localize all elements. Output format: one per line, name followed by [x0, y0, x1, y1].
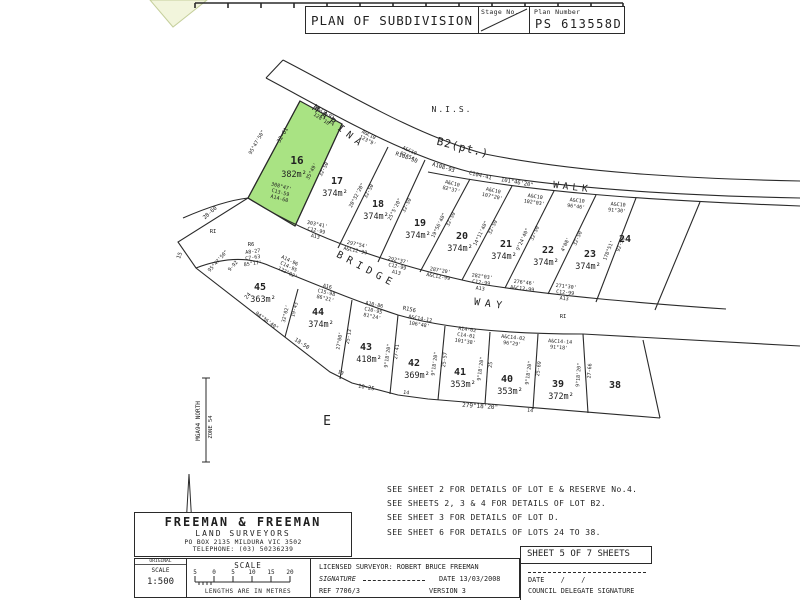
sheet-notes: SEE SHEET 2 FOR DETAILS OF LOT E & RESER…	[387, 483, 637, 540]
firm-phone: TELEPHONE: (03) 50236239	[135, 546, 351, 553]
plan-label: 374m²	[308, 320, 334, 330]
scale-value-cell: ORIGINAL SCALE 1:500	[135, 559, 187, 597]
plan-label: 14	[403, 390, 410, 397]
page-title: PLAN OF SUBDIVISION	[311, 13, 473, 28]
plan-label: 42	[408, 358, 420, 369]
plan-label: 19	[414, 218, 426, 229]
plan-label: 19-43	[290, 302, 299, 318]
plan-label: 27°00'	[335, 331, 344, 350]
scalebar-tick: 20	[286, 569, 294, 576]
plan-label: 22	[542, 245, 554, 256]
plan-label: 96°29'	[503, 340, 522, 348]
scalebar-tick: 5	[193, 569, 197, 576]
stage-no-cell: Stage No.	[479, 7, 530, 33]
firm-address: PO BOX 2135 MILDURA VIC 3502	[135, 539, 351, 546]
plan-label: 10-25	[357, 384, 374, 393]
plan-label: R6	[248, 242, 255, 248]
plan-label: 9°18'20"	[524, 361, 533, 386]
plan-label: A13	[391, 269, 401, 277]
plan-label: 9°18'20"	[476, 357, 485, 382]
note-line: SEE SHEETS 2, 3 & 4 FOR DETAILS OF LOT B…	[387, 497, 637, 511]
plan-label: 20	[456, 231, 468, 242]
firm-name: FREEMAN & FREEMAN	[135, 515, 351, 529]
plan-label: 32-50	[445, 211, 457, 227]
plan-label: 9-92	[227, 260, 240, 273]
scalebar-tick: 0	[212, 569, 216, 576]
plan-label: 374m²	[533, 258, 559, 268]
plan-label: 374m²	[363, 212, 389, 222]
title-block: PLAN OF SUBDIVISION Stage No. Plan Numbe…	[305, 6, 625, 34]
plan-label: 374m²	[322, 189, 348, 199]
plan-label: 372m²	[548, 392, 574, 402]
plan-label: 43	[360, 342, 372, 353]
council-date: DATE / /	[528, 576, 585, 584]
licensed-surveyor-line: LICENSED SURVEYOR: ROBERT BRUCE FREEMAN	[319, 563, 479, 571]
plan-label: RI	[210, 229, 217, 235]
council-signature-label: COUNCIL DELEGATE SIGNATURE	[528, 587, 634, 595]
plan-label: 32-50	[487, 219, 499, 235]
plan-label: N.I.S.	[432, 105, 473, 114]
plan-label: B2(pt.)	[435, 135, 490, 161]
plan-label: ZONE 54	[208, 415, 214, 439]
plan-label: 363m²	[250, 295, 276, 305]
note-line: SEE SHEET 3 FOR DETAILS OF LOT D.	[387, 511, 637, 525]
signature-label: SIGNATURE	[319, 575, 356, 583]
plan-label: 21	[500, 239, 512, 250]
sheet-number: SHEET 5 OF 7 SHEETS	[521, 547, 651, 562]
plan-label: 38	[609, 380, 621, 391]
plan-label: 4°08'	[560, 236, 572, 252]
council-signature-line	[528, 572, 646, 573]
plan-label: 17	[331, 176, 343, 187]
plan-labels: N.I.S.MARINAB2(pt.)WALKBRIDGEWAYER108-50…	[176, 103, 631, 441]
plan-label: 15	[176, 252, 184, 260]
surveyor-ref: REF 7706/3	[319, 587, 360, 595]
north-arrow	[186, 378, 210, 526]
sheet-number-box: SHEET 5 OF 7 SHEETS	[520, 546, 652, 564]
plan-label: 39	[552, 379, 564, 390]
plan-label: 95°47'50"	[248, 129, 267, 155]
plan-label: A13	[475, 285, 485, 292]
plan-label: 18-50	[293, 337, 310, 351]
plan-label: 95°47'50"	[207, 249, 230, 273]
scale-value: 1:500	[135, 577, 186, 587]
council-delegate-block: DATE / / COUNCIL DELEGATE SIGNATURE	[520, 564, 662, 600]
plan-number-value: PS 613558D	[535, 17, 622, 31]
plan-label: 369m²	[404, 371, 430, 381]
scalebar-tick: 10	[248, 569, 256, 576]
plan-label: 353m²	[450, 380, 476, 390]
plan-label: 18	[372, 199, 384, 210]
plan-label: WALK	[552, 180, 592, 196]
scale-label: SCALE	[135, 567, 186, 574]
surveyor-version: VERSION 3	[429, 587, 466, 595]
note-line: SEE SHEET 2 FOR DETAILS OF LOT E & RESER…	[387, 483, 637, 497]
plan-label: 27-66	[586, 363, 593, 378]
plan-label: WAY	[473, 297, 507, 312]
plan-label: 25	[488, 361, 495, 368]
plan-label: 25-69	[535, 361, 543, 377]
original-label: ORIGINAL	[135, 559, 186, 565]
plan-number-label: Plan Number	[534, 8, 580, 16]
note-line: SEE SHEET 6 FOR DETAILS OF LOTS 24 TO 38…	[387, 526, 637, 540]
plan-label: E	[323, 414, 331, 429]
scale-bar-cell: SCALE 5 0 5 10 15 20 LENGTHS ARE IN METR…	[187, 559, 311, 597]
plan-label: 41	[454, 367, 466, 378]
plan-label: 9°18'20"	[575, 363, 583, 387]
surveyor-firm-box: FREEMAN & FREEMAN LAND SURVEYORS PO BOX …	[134, 512, 352, 557]
plan-number-cell: Plan Number PS 613558D	[530, 7, 624, 33]
plan-label: MGA94 NORTH	[195, 401, 202, 441]
plan-label: A13	[559, 296, 569, 303]
scale-bar: SCALE 5 0 5 10 15 20 LENGTHS ARE IN METR…	[187, 559, 309, 597]
licensed-surveyor-cell: LICENSED SURVEYOR: ROBERT BRUCE FREEMAN …	[311, 559, 519, 597]
plan-label: 32-50	[529, 225, 541, 241]
scalebar-tick: 15	[267, 569, 275, 576]
page-corner-fold	[150, 0, 207, 27]
plan-label: 14	[527, 408, 533, 414]
plan-label: 374m²	[491, 252, 517, 262]
plan-label: 178°51'	[602, 240, 615, 262]
plan-label: 85°17'	[243, 260, 262, 268]
surveyor-date: DATE 13/03/2008	[439, 575, 500, 583]
plan-label: 374m²	[447, 244, 473, 254]
signature-line	[363, 580, 425, 581]
scanned-plan-page: { "header": { "title": "PLAN OF SUBDIVIS…	[0, 0, 800, 600]
plan-label: 40	[501, 374, 513, 385]
plan-label: 9°18'20"	[430, 352, 439, 377]
scalebar-caption: LENGTHS ARE IN METRES	[205, 588, 291, 595]
plan-label: 24	[619, 234, 631, 245]
scalebar-tick: 5	[231, 569, 235, 576]
footer-strip: ORIGINAL SCALE 1:500 SCALE 5 0 5 10 15 2…	[134, 558, 520, 598]
stage-no-slash	[479, 7, 529, 32]
plan-label: 382m²	[281, 170, 307, 180]
plan-label: 91°30'	[608, 207, 627, 215]
plan-label: 25-13	[345, 329, 354, 345]
firm-subtitle: LAND SURVEYORS	[135, 529, 351, 538]
plan-title-cell: PLAN OF SUBDIVISION	[306, 7, 479, 33]
plan-label: 91°18'	[550, 344, 568, 351]
plan-label: 418m²	[356, 355, 382, 365]
plan-label: 45	[254, 282, 266, 293]
plan-label: 32-50	[401, 197, 413, 213]
plan-label: A13	[310, 233, 320, 241]
plan-label: 353m²	[497, 387, 523, 397]
plan-label: 374m²	[575, 262, 601, 272]
plan-label: 9°18'20"	[383, 344, 392, 369]
plan-label: 94°36'40"	[254, 311, 279, 332]
plan-label: 374m²	[405, 231, 431, 241]
plan-label: 44	[312, 307, 324, 318]
plan-label: RI	[560, 314, 567, 320]
plan-label: 32-50	[572, 230, 584, 246]
plan-label: 16	[290, 154, 304, 167]
plan-label: 279°18'20"	[462, 402, 499, 412]
plan-label: 27-41	[393, 344, 401, 360]
plan-label: 25-57	[441, 352, 449, 368]
plan-label: 23	[584, 249, 596, 260]
plan-label: 96°46'	[567, 203, 586, 211]
